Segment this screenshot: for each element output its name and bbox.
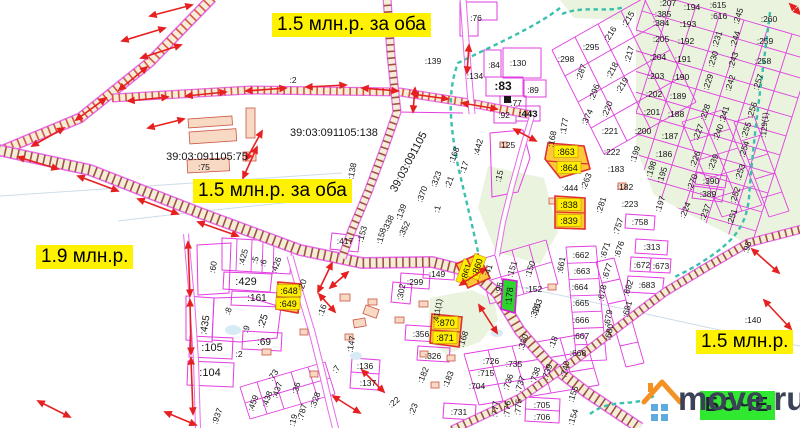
parcel-label: :775 [512,398,523,416]
parcel-label: :429 [235,276,256,288]
parcel-label: :673 [653,261,670,271]
parcel-label: :298 [558,54,575,64]
parcel-label: :1 [431,204,443,214]
parcel-label: :222 [604,147,621,157]
parcel-label: :197 [653,194,668,213]
parcel-label: :426 [268,255,283,274]
parcel-label: :328 [307,390,322,409]
parcel-label: :682 [621,278,636,297]
building [262,349,271,355]
building [363,305,379,318]
price-label-center: 1.5 млн.р. за оба [193,179,352,203]
plot-number-chip: :864 [557,162,581,174]
parcel-label: :356 [413,329,430,339]
direction-arrow [191,358,193,414]
parcel-label: :149 [429,269,446,279]
parcel-label: :188 [668,109,685,119]
road [0,0,212,152]
plot-number-chip: :839 [557,215,581,227]
parcel-label: :672 [634,260,651,270]
direction-arrow [752,249,779,273]
parcel-label: :706 [534,412,551,422]
parcel-label: :260 [761,14,778,24]
parcel-label: :731 [451,407,468,417]
parcel-label: :22 [386,394,402,409]
parcel-label: :258 [755,56,772,66]
parcel-label: :18 [546,334,560,349]
parcel-label: :435 [198,314,212,336]
direction-arrow [150,5,192,16]
window-icon [661,404,668,411]
parcel-label: :21 [442,174,456,189]
building [368,299,377,305]
parcel-label: :187 [662,131,679,141]
parcel-label: :16 [315,302,329,317]
parcel-label: :154 [566,407,581,426]
parcel-label: :326 [425,351,442,361]
parcel-label: :83 [494,79,512,93]
parcel-label: :183 [608,164,625,174]
parcel-label: :136 [357,361,374,371]
parcel-label: :615 [710,0,727,10]
parcel-label: :23 [406,401,420,416]
parcel-label: :105 [201,342,222,354]
parcel-label: :442 [471,137,485,156]
price-label-top: 1.5 млн.р. за оба [272,13,431,37]
parcel-line [236,239,237,271]
svg-text::649: :649 [279,299,297,309]
parcel-label: :295 [583,42,600,52]
parcel-label: :313 [644,242,661,252]
parcel-label: :259 [757,36,774,46]
svg-text::838: :838 [560,200,578,210]
road-casing [0,0,212,152]
parcel-line [397,112,463,113]
parcel-label: :130 [510,58,527,68]
svg-text::839: :839 [560,216,578,226]
parcel-label: :715 [478,368,495,378]
moveru-logo-text: move.ru [678,380,800,418]
window-icon [651,414,658,421]
parcel-label: :443 [518,109,537,120]
parcel-line [262,241,263,273]
parcel-label: :177 [558,117,571,135]
parcel-label: :666 [573,315,590,325]
parcel-label: :104 [199,367,220,379]
parcel-label: :671 [598,240,613,259]
cadastral-number: 39:03:091105:138 [290,127,378,139]
direction-arrow [764,300,791,329]
building [189,129,237,144]
parcel-label: :777 [489,400,500,418]
parcel-label: :287 [573,62,588,81]
parcel-label: :150 [523,259,538,278]
parcel-label: :60 [207,260,219,274]
building [300,329,308,335]
parcel-label: :374 [579,107,595,126]
pond [225,325,241,335]
parcel-label: :735 [506,359,523,369]
parcel-label: :36 [290,381,303,395]
direction-arrow [165,412,196,425]
parcel-label: :8 [222,306,234,316]
parcel-label: :389 [700,189,717,199]
parcel-label: :677 [600,261,615,280]
parcel-label: :425 [236,247,250,266]
parcel-label: :302 [395,283,408,301]
parcel-label: :6 [257,258,269,268]
building [310,371,318,377]
building [447,355,455,361]
parcel-label: :390 [703,176,720,186]
direction-arrow [122,28,165,41]
parcel-label: :25 [256,312,271,329]
building [419,301,428,307]
parcel-label: :299 [407,277,424,287]
parcel-label: :263 [578,171,594,190]
parcel-label: :664 [572,282,589,292]
parcel-label: :204 [650,52,667,62]
parcel-label: :438 [259,389,274,408]
parcel-label: :76 [470,13,482,23]
parcel-label: :676 [612,239,627,258]
parcel-label: :663 [574,266,591,276]
parcel-label: :704 [469,381,486,391]
cadastral-number: 39:03:091105 [388,130,430,194]
parcel-label: :352 [396,219,412,238]
parcel-label: :125 [499,140,516,150]
parcel-label: :137 [360,378,377,388]
direction-arrow [76,98,106,120]
parcel-label: :140 [745,315,762,325]
building [395,317,404,323]
parcel-label: :147 [345,335,358,353]
parcel-label: :199 [628,144,643,163]
parcel-label: :459 [245,393,260,412]
parcel-label: :683 [639,280,656,290]
parcel-label: :182 [617,182,634,192]
parcel-label: :134 [467,71,484,81]
parcel-label: :9 [240,324,252,334]
building [188,116,233,128]
parcel-label: :370 [414,184,429,203]
parcel-label: :84 [488,60,500,70]
parcel-label: :758 [632,217,649,227]
building [353,318,366,328]
parcel-label: :776 [501,400,512,418]
parcel-label: :205 [653,34,670,44]
cadastral-map-canvas: :863:864:838:839:648:649:870:871:861:860… [0,0,800,428]
parcel-label: :202 [646,89,663,99]
parcel-label: :151 [505,259,520,278]
parcel-label: :193 [680,19,697,29]
parcel-label: :221 [602,126,619,136]
cadastral-number: :138 [345,162,358,181]
parcel-label: :444 [562,183,579,193]
parcel-label: :203 [648,71,665,81]
parcel-label: :661 [555,256,568,274]
parcel-label: :662 [573,250,590,260]
parcel-label: :139 [393,202,408,221]
parcel-label: :668 [570,348,587,358]
svg-text::864: :864 [560,163,578,173]
parcel-label: :726 [483,356,500,366]
parcel-label: :189 [670,91,687,101]
plot-number-chip: :863 [554,146,578,158]
parcel-label: :705 [534,400,551,410]
direction-arrow [190,300,191,354]
parcel-label: :223 [622,199,639,209]
parcel-label: :2 [235,349,242,359]
svg-text::178: :178 [503,287,515,306]
plot-number-chip: :649 [276,298,300,310]
parcel-label: :77 [510,98,522,108]
plot-number-chip: :838 [557,199,581,211]
parcel-label: :183 [440,369,456,388]
parcel-label: :200 [635,126,652,136]
parcel-label: :937 [209,406,224,425]
parcel-label: :331 [528,300,543,319]
parcel-label: :667 [573,331,590,341]
parcel-label: :155 [566,384,581,403]
parcel-label: :89 [527,85,539,95]
parcel-label: :616 [711,11,728,21]
moveru-watermark: БОЧЕ move.ru [638,372,800,426]
plot-number-chip: :871 [433,332,457,344]
parcel-label: :281 [594,195,609,214]
parcel-label: :207 [660,0,677,8]
svg-text::871: :871 [436,333,454,343]
direction-arrow [38,401,70,417]
plot-number-chip: :178 [503,287,515,306]
parcel-label: :69 [257,337,271,348]
building [548,284,556,290]
parcel-label: :168 [446,145,461,164]
parcel-label: :186 [656,149,673,159]
direction-arrow [148,119,184,128]
svg-text::863: :863 [557,147,575,157]
parcel-label: :216 [601,24,618,44]
green-area [478,166,558,264]
window-icon [661,414,668,421]
building [246,108,255,138]
price-label-left: 1.9 млн.р. [36,245,133,269]
parcel-label: :384 [653,18,670,28]
parcel-label: :161 [247,293,267,304]
parcel-label: :417 [337,236,354,246]
parcel-label: :92 [498,110,510,120]
parcel-label: :2 [289,75,296,85]
parcel-label: :152 [526,284,543,294]
road-hatching [0,0,212,152]
direction-arrow [333,396,360,413]
parcel-label: :194 [684,2,701,12]
parcel-label: :201 [644,107,661,117]
parcel-label: :192 [678,36,695,46]
parcel-label: :7 [330,363,342,375]
price-label-right: 1.5 млн.р. [696,330,793,354]
direction-arrow [330,272,348,288]
parcel-label: :190 [673,72,690,82]
building [431,382,439,388]
parcel-label: :665 [573,298,590,308]
parcel-label: :757 [611,216,626,235]
parcel-label: :217 [622,44,636,63]
parcel-label: :191 [675,54,692,64]
parcel-label: :139 [425,56,442,66]
parcel-label: :182 [415,365,431,384]
cadastral-map-screenshot: :863:864:838:839:648:649:870:871:861:860… [0,0,800,428]
window-icon [651,404,658,411]
building [340,294,350,301]
parcel-label: :158 [374,226,388,245]
parcel-label: :17 [457,159,471,174]
parcel-label: :73 [266,367,281,383]
cadastral-number: :75 [198,162,210,172]
